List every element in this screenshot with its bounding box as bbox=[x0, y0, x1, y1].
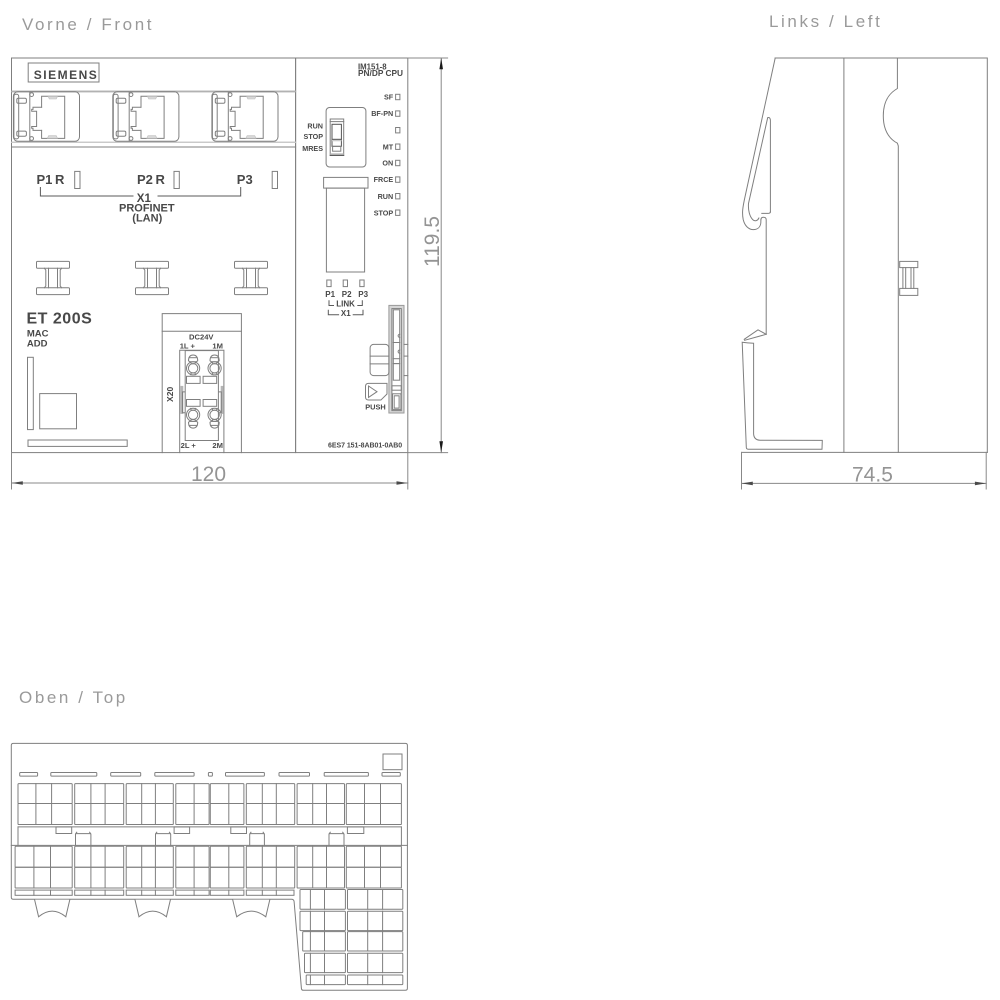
svg-text:P3: P3 bbox=[358, 290, 368, 299]
svg-text:MRES: MRES bbox=[302, 144, 323, 153]
svg-text:PN/DP CPU: PN/DP CPU bbox=[358, 68, 403, 78]
svg-text:BF-PN: BF-PN bbox=[371, 109, 393, 118]
svg-text:Links / Left: Links / Left bbox=[769, 12, 882, 31]
svg-text:RUN: RUN bbox=[307, 122, 323, 131]
svg-text:P1 R: P1 R bbox=[37, 172, 66, 187]
svg-text:1L +: 1L + bbox=[180, 341, 196, 350]
svg-text:Vorne / Front: Vorne / Front bbox=[22, 15, 154, 34]
svg-text:P3: P3 bbox=[237, 172, 253, 187]
svg-text:PUSH: PUSH bbox=[365, 402, 386, 411]
svg-text:P2: P2 bbox=[342, 290, 352, 299]
svg-text:STOP: STOP bbox=[374, 208, 394, 217]
svg-text:6ES7 151-8AB01-0AB0: 6ES7 151-8AB01-0AB0 bbox=[328, 442, 402, 449]
svg-text:119.5: 119.5 bbox=[421, 216, 444, 267]
svg-text:1M: 1M bbox=[212, 341, 223, 350]
svg-text:ET 200S: ET 200S bbox=[27, 311, 93, 328]
svg-text:120: 120 bbox=[191, 463, 226, 486]
svg-text:Oben / Top: Oben / Top bbox=[19, 688, 128, 707]
svg-text:ON: ON bbox=[382, 159, 393, 168]
svg-text:ADD: ADD bbox=[27, 338, 48, 349]
svg-text:SF: SF bbox=[384, 93, 394, 102]
svg-text:FRCE: FRCE bbox=[374, 175, 394, 184]
svg-text:P1: P1 bbox=[325, 290, 335, 299]
svg-text:P2 R: P2 R bbox=[137, 172, 166, 187]
svg-text:2L +: 2L + bbox=[181, 441, 197, 450]
svg-text:2M: 2M bbox=[212, 441, 223, 450]
svg-text:74.5: 74.5 bbox=[852, 464, 893, 487]
svg-text:STOP: STOP bbox=[304, 132, 324, 141]
svg-text:MT: MT bbox=[383, 142, 394, 151]
svg-text:LINK: LINK bbox=[336, 300, 355, 309]
svg-text:SIEMENS: SIEMENS bbox=[34, 68, 99, 82]
svg-text:(LAN): (LAN) bbox=[132, 213, 162, 225]
svg-text:RUN: RUN bbox=[378, 192, 394, 201]
svg-text:X20: X20 bbox=[165, 386, 175, 402]
svg-text:X1: X1 bbox=[341, 309, 351, 318]
